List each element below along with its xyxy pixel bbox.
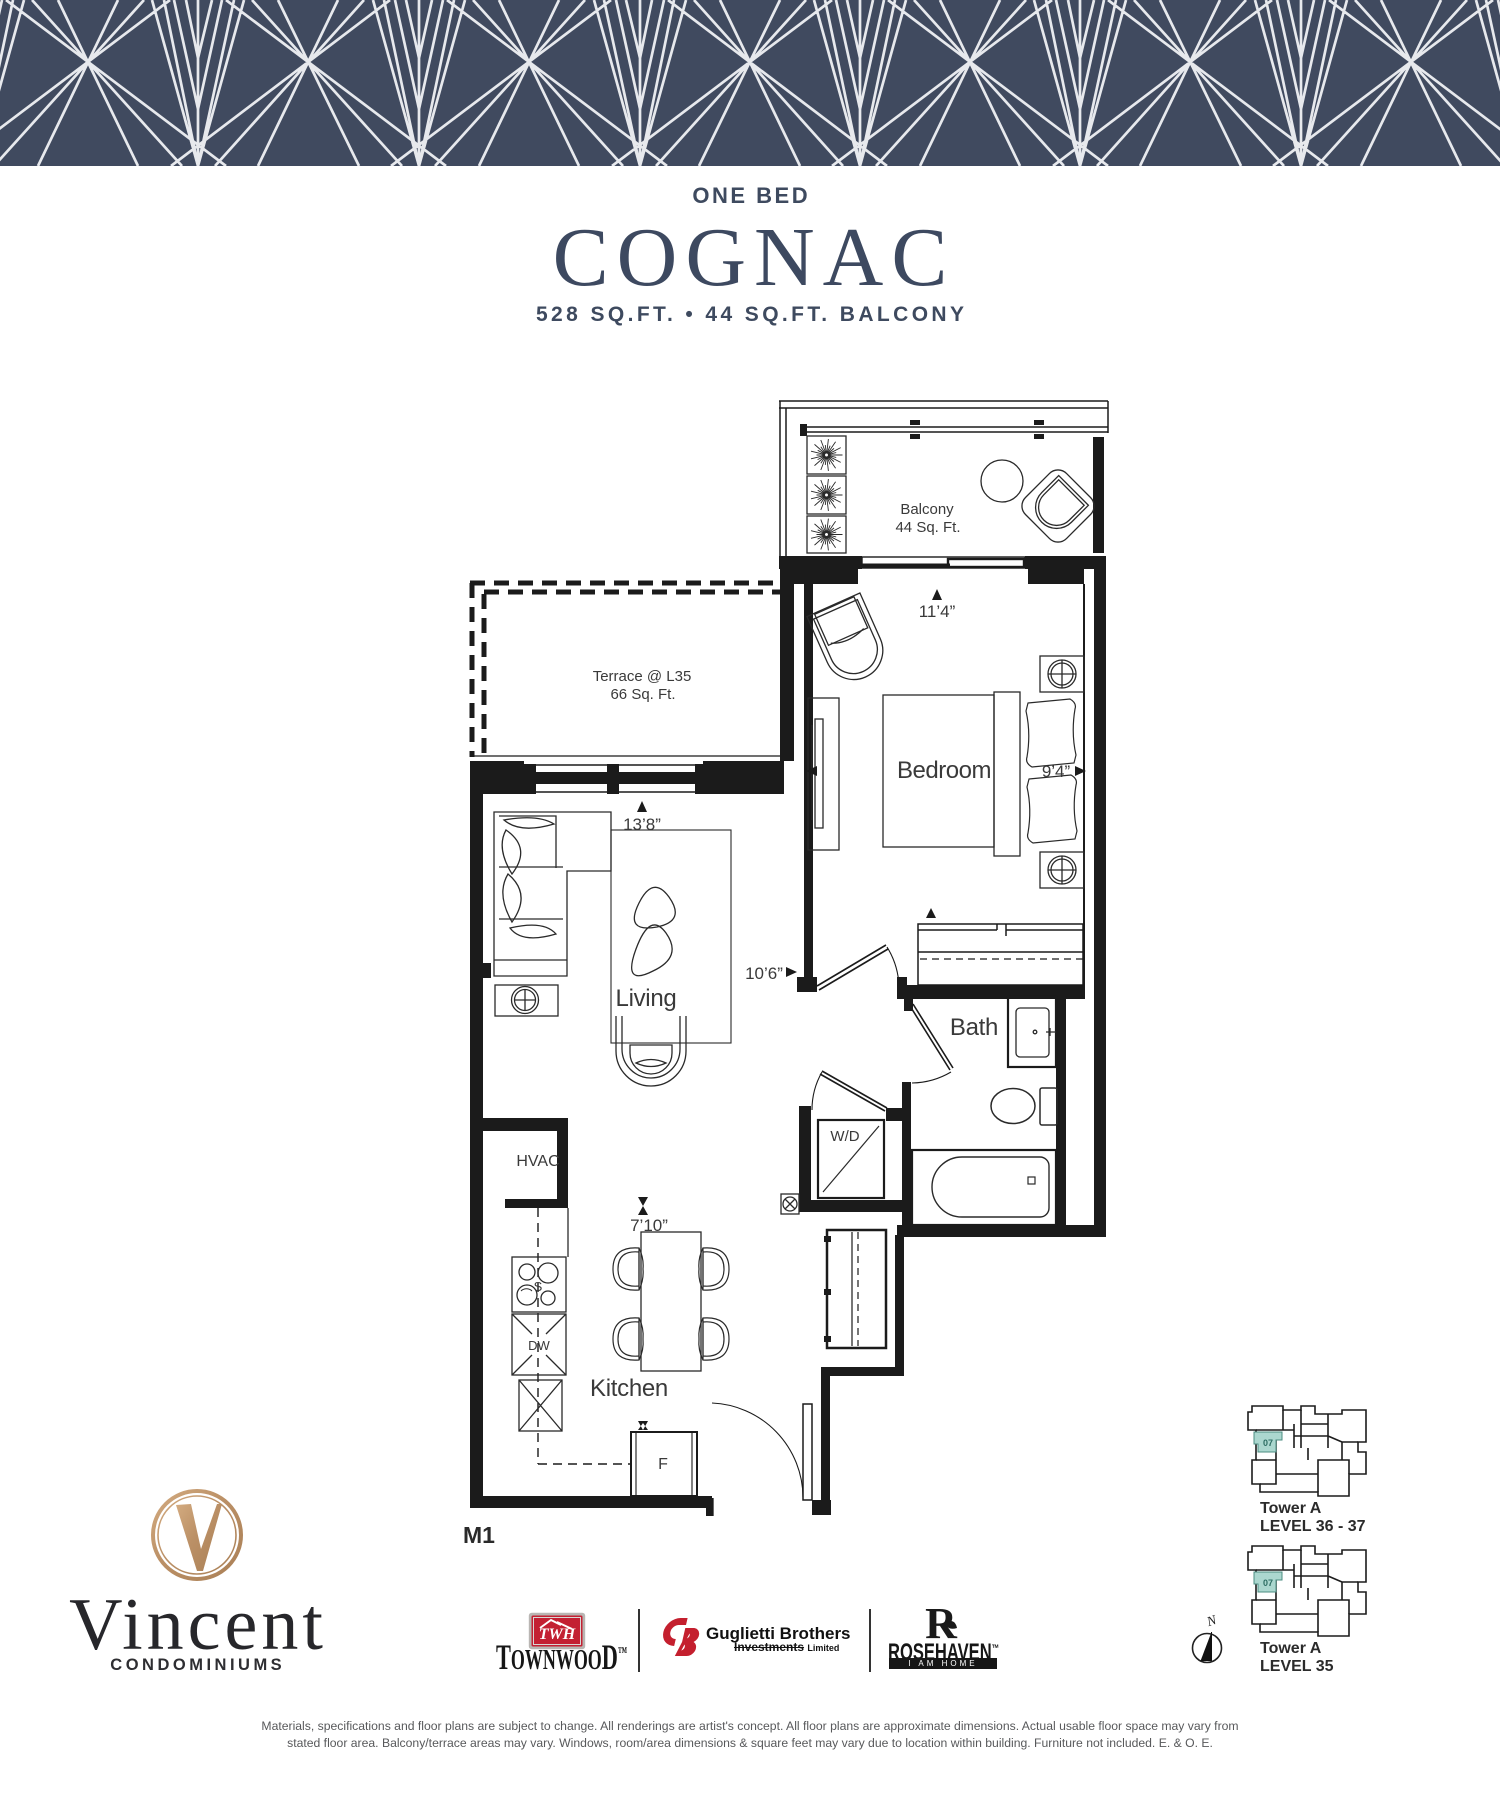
svg-text:07: 07 <box>1263 1438 1273 1448</box>
svg-text:M1: M1 <box>463 1522 495 1548</box>
svg-text:13’8”: 13’8” <box>623 815 661 834</box>
svg-text:Bedroom: Bedroom <box>897 757 991 784</box>
svg-text:11’4”: 11’4” <box>919 602 956 621</box>
svg-text:F: F <box>658 1456 668 1473</box>
svg-text:66 Sq. Ft.: 66 Sq. Ft. <box>610 686 675 703</box>
svg-text:9’4”: 9’4” <box>1042 762 1071 781</box>
svg-text:N: N <box>1204 1612 1219 1630</box>
svg-text:Living: Living <box>616 985 677 1012</box>
svg-text:7’10”: 7’10” <box>630 1216 668 1235</box>
svg-text:S: S <box>534 1279 543 1294</box>
svg-text:DW: DW <box>528 1338 550 1353</box>
svg-text:44 Sq. Ft.: 44 Sq. Ft. <box>895 519 960 536</box>
svg-text:W/D: W/D <box>830 1128 859 1145</box>
svg-text:10’6”: 10’6” <box>745 964 783 983</box>
svg-text:Balcony: Balcony <box>900 501 954 518</box>
svg-text:HVAC: HVAC <box>516 1153 559 1170</box>
svg-text:Bath: Bath <box>950 1014 998 1041</box>
svg-text:07: 07 <box>1263 1578 1273 1588</box>
svg-text:Kitchen: Kitchen <box>590 1375 668 1402</box>
svg-text:Terrace @ L35: Terrace @ L35 <box>593 668 692 685</box>
